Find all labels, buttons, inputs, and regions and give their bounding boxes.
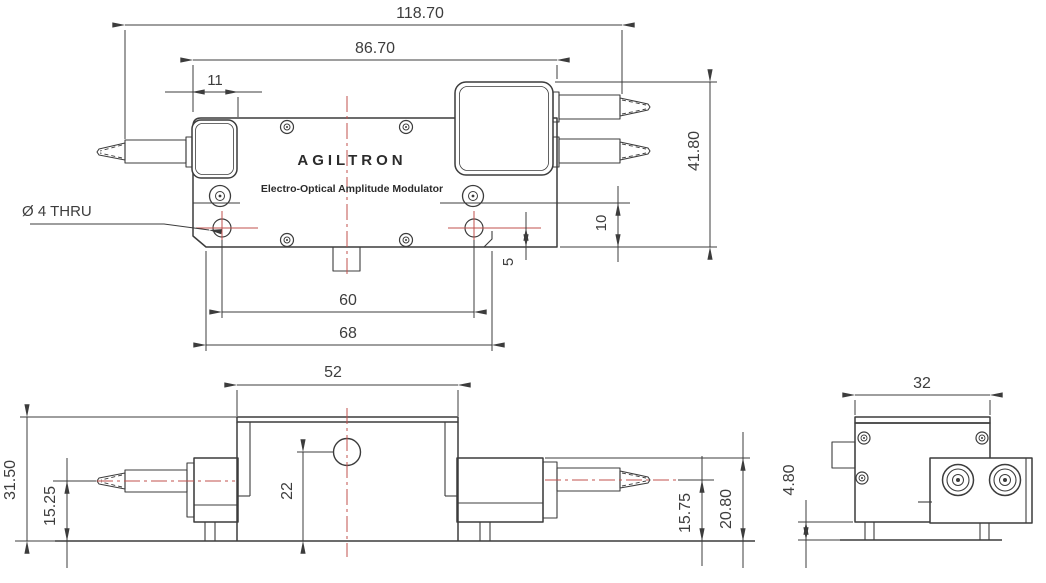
dim-fiber-axis-left: 15.25 — [42, 458, 96, 568]
hole-callout-label: Ø 4 THRU — [22, 203, 92, 220]
collimator-block-left-front — [97, 458, 238, 541]
dim-hole-edge-offset-label: 5 — [500, 258, 517, 266]
hole-callout: Ø 4 THRU — [22, 203, 209, 230]
screw-icon — [400, 121, 413, 134]
flange-chamfer-right — [484, 231, 492, 247]
dim-body-length-label: 86.70 — [355, 40, 395, 57]
dim-overall-width: 41.80 — [555, 82, 717, 247]
dim-hole-spacing: 60 — [222, 240, 474, 318]
front-view: 52 31.50 15.25 22 15.75 — [2, 364, 755, 568]
dim-depth-label: 32 — [913, 375, 931, 392]
screw-icon — [858, 432, 870, 444]
collimator-block-right-front — [457, 458, 650, 541]
dim-base-height: 4.80 — [781, 464, 853, 568]
collimator-housing-left — [192, 120, 237, 178]
side-tab — [832, 442, 855, 468]
dim-fiber-axis-right: 15.75 — [677, 456, 714, 566]
fiber-pigtail-output-lower — [553, 137, 650, 167]
screw-icon — [281, 234, 294, 247]
top-view: AGILTRON Electro-Optical Amplitude Modul… — [22, 5, 717, 351]
modulator-dimension-drawing: AGILTRON Electro-Optical Amplitude Modul… — [0, 0, 1046, 583]
rf-connector-icon — [990, 465, 1021, 496]
screw-icon — [281, 121, 294, 134]
dim-overall-height-label: 31.50 — [2, 460, 19, 500]
screw-icon — [400, 234, 413, 247]
dim-fiber-axis-right-label: 15.75 — [677, 493, 694, 533]
fiber-pigtail-output-upper — [553, 92, 650, 122]
dim-flange-height: 10 — [557, 186, 630, 262]
side-legs — [865, 522, 989, 540]
dim-hole-spacing-label: 60 — [339, 292, 357, 309]
dim-block-height-label: 20.80 — [718, 489, 735, 529]
dim-base-height-label: 4.80 — [781, 464, 798, 495]
screw-icon — [856, 472, 868, 484]
dim-fiber-axis-left-label: 15.25 — [42, 486, 59, 526]
dim-overall-width-label: 41.80 — [686, 131, 703, 171]
rf-connector-icon — [943, 465, 974, 496]
dim-overall-length-label: 118.70 — [396, 5, 444, 22]
collimator-housing-right — [455, 82, 553, 175]
brand-logo-text: AGILTRON — [297, 152, 406, 169]
dim-lid-width-label: 52 — [324, 364, 342, 381]
dim-hole-center-height: 22 — [279, 452, 333, 541]
fiber-pigtail-input — [97, 137, 192, 167]
lid-plate-side — [855, 417, 990, 423]
engineering-drawing-page: AGILTRON Electro-Optical Amplitude Modul… — [0, 0, 1046, 583]
dim-hole-center-height-label: 22 — [279, 482, 296, 500]
dim-flange-length-label: 68 — [339, 325, 357, 342]
dim-hole-edge-offset: 5 — [500, 212, 526, 266]
dim-flange-height-label: 10 — [593, 215, 610, 232]
screw-icon — [976, 432, 988, 444]
dim-block-height: 20.80 — [545, 432, 750, 568]
product-subtitle-text: Electro-Optical Amplitude Modulator — [261, 183, 443, 195]
dim-collimator-width-label: 11 — [207, 72, 223, 89]
side-view: 32 4.80 — [781, 375, 1032, 568]
dim-depth: 32 — [855, 375, 990, 415]
dim-collimator-width: 11 — [165, 72, 262, 117]
